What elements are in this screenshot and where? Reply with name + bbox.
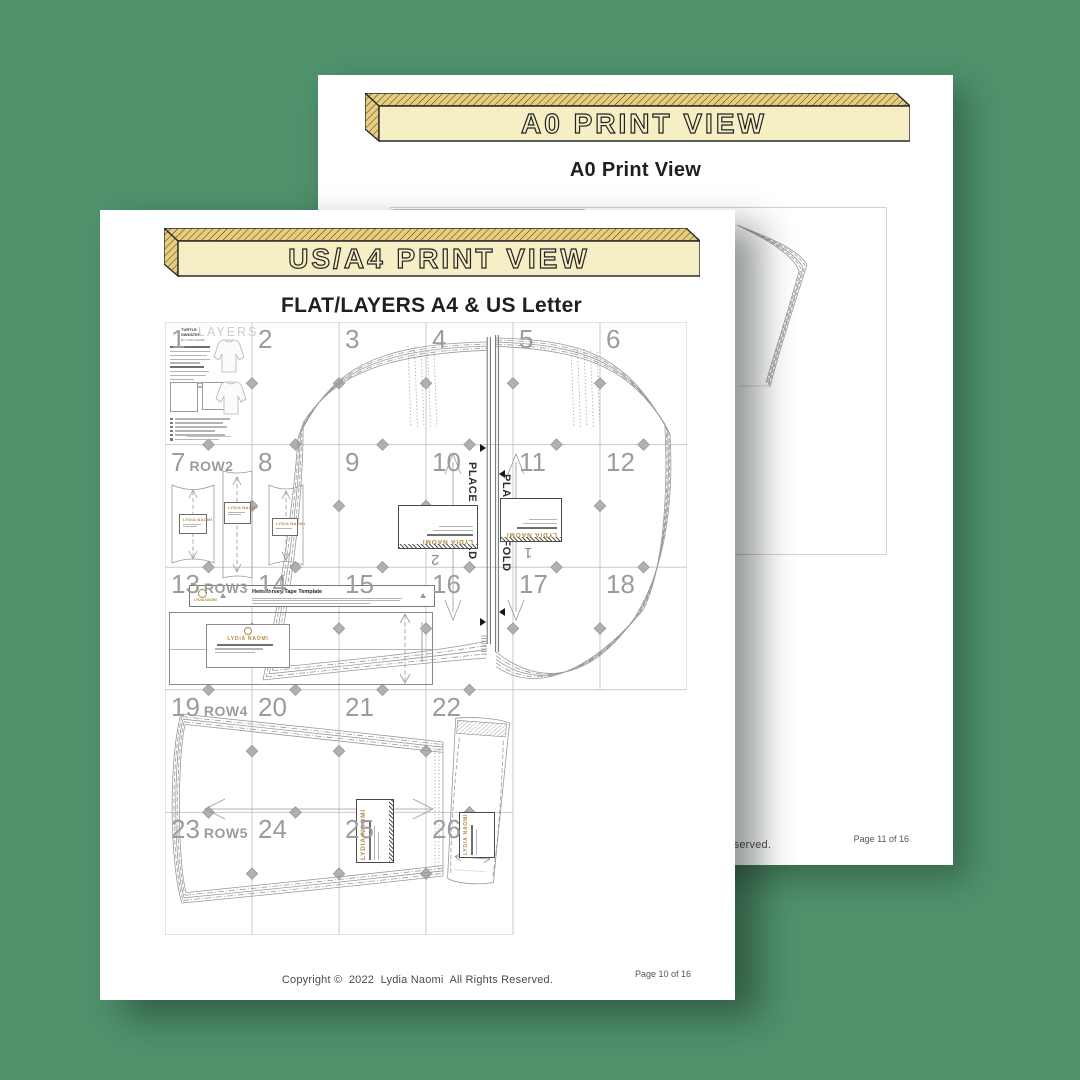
a0-banner: A0 PRINT VIEW (365, 93, 910, 147)
a0-banner-label: A0 PRINT VIEW (521, 108, 767, 139)
small-piece-b (223, 471, 252, 578)
banner-3d-bar-icon: A0 PRINT VIEW (365, 93, 910, 142)
cuff-piece (444, 716, 509, 885)
usa4-title: FLAT/LAYERS A4 & US Letter (114, 294, 749, 318)
small-piece-b-label: LYDIA NAOMI (224, 502, 251, 524)
usa4-banner-label: US/A4 PRINT VIEW (288, 243, 590, 274)
cuff-piece-label: LYDIA NAOMI (459, 812, 495, 858)
usa4-banner: US/A4 PRINT VIEW (164, 228, 700, 282)
usa4-footer: Copyright © 2022 Lydia Naomi All Rights … (100, 974, 735, 990)
banner-3d-bar-icon: US/A4 PRINT VIEW (164, 228, 700, 277)
front-page-usa4: US/A4 PRINT VIEW FLAT/LAYERS A4 & US Let… (100, 210, 735, 1000)
up-arrow-icon (220, 593, 226, 598)
hem-template-label: LYDIA NAOMI (206, 624, 290, 668)
green-background: A0 PRINT VIEW A0 Print View Copyright © … (0, 0, 1080, 1080)
brand-ring-icon (244, 627, 252, 635)
back-piece-label: LYDIA NAOMI (398, 505, 478, 549)
small-piece-c-label: LYDIA NAOMI (272, 518, 298, 536)
sleeve-piece-label: LYDIA NAOMI (356, 799, 394, 863)
hem-tape-template-bar: LYDIA NAOMI Hem Jersey Tape Template (189, 585, 435, 607)
fold-hem-ticks (481, 636, 487, 654)
hem-template-title: Hem Jersey Tape Template (252, 589, 322, 595)
a0-page-number: Page 11 of 16 (854, 834, 909, 844)
front-piece-label: LYDIA NAOMI (500, 498, 562, 542)
a0-title: A0 Print View (318, 159, 953, 182)
usa4-page-number: Page 10 of 16 (635, 969, 691, 979)
hem-template-subtext (252, 596, 402, 605)
back-piece-number: 2 (431, 551, 439, 568)
tiled-pattern-grid: TURTLE SWEATER BY LYDIA NAOMI LAYERS (165, 322, 687, 935)
sleeve-piece (205, 742, 443, 876)
front-piece-number: 1 (524, 544, 532, 561)
brand-ring-icon (198, 589, 207, 598)
small-piece-a-label: LYDIA NAOMI (179, 514, 207, 534)
hem-tape-template-rect: LYDIA NAOMI (169, 612, 433, 685)
up-arrow-icon (420, 593, 426, 598)
